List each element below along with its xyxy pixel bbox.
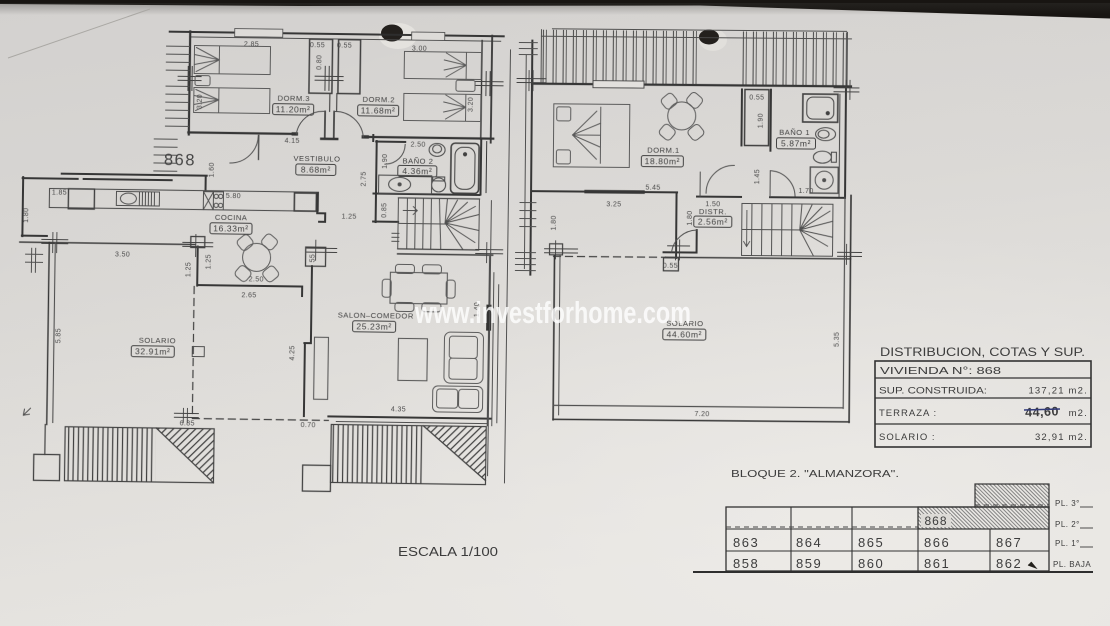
svg-text:www.investforhome.com: www.investforhome.com <box>414 295 691 330</box>
svg-text:DISTRIBUCION, COTAS Y SUP.: DISTRIBUCION, COTAS Y SUP. <box>880 347 1085 359</box>
svg-text:18.80m²: 18.80m² <box>645 156 680 166</box>
svg-text:859: 859 <box>796 556 822 571</box>
svg-text:25.23m²: 25.23m² <box>356 321 392 331</box>
svg-text:DISTR.: DISTR. <box>699 207 727 216</box>
svg-text:1.90: 1.90 <box>758 113 765 128</box>
svg-text:864: 864 <box>796 535 822 550</box>
svg-text:BAÑO 2: BAÑO 2 <box>402 156 433 165</box>
svg-text:1.80: 1.80 <box>551 215 558 230</box>
svg-text:1.80: 1.80 <box>23 208 30 223</box>
svg-text:1.25: 1.25 <box>205 254 212 269</box>
svg-text:0.55: 0.55 <box>337 42 352 49</box>
svg-text:11.68m²: 11.68m² <box>361 106 396 116</box>
svg-text:1.25: 1.25 <box>185 262 192 277</box>
svg-text:3.00: 3.00 <box>412 46 427 53</box>
svg-text:1.90: 1.90 <box>382 154 389 169</box>
svg-text:5.45: 5.45 <box>645 185 660 192</box>
svg-text:0.55: 0.55 <box>749 95 764 102</box>
svg-text:3.50: 3.50 <box>115 251 130 258</box>
svg-text:m2.: m2. <box>1069 408 1088 419</box>
svg-text:862: 862 <box>996 556 1022 571</box>
svg-text:0.85: 0.85 <box>381 203 388 218</box>
svg-text:867: 867 <box>996 535 1022 550</box>
svg-text:863: 863 <box>733 535 759 550</box>
svg-text:DORM.1: DORM.1 <box>647 146 680 155</box>
svg-text:5.87m²: 5.87m² <box>781 138 811 148</box>
svg-text:2.50: 2.50 <box>411 142 426 149</box>
svg-text:PL. 3°: PL. 3° <box>1055 499 1080 508</box>
svg-text:0.70: 0.70 <box>301 422 316 429</box>
svg-text:BLOQUE 2. "ALMANZORA".: BLOQUE 2. "ALMANZORA". <box>731 468 899 480</box>
svg-text:2.85: 2.85 <box>244 41 259 48</box>
svg-text:SOLARIO: SOLARIO <box>139 336 176 346</box>
svg-text:32.91m²: 32.91m² <box>135 346 171 356</box>
svg-text:0.80: 0.80 <box>316 55 323 70</box>
svg-text:PL. 1°: PL. 1° <box>1055 539 1080 548</box>
svg-text:860: 860 <box>858 556 884 571</box>
svg-text:PL. BAJA: PL. BAJA <box>1053 560 1091 569</box>
svg-text:1.80: 1.80 <box>687 210 694 225</box>
svg-text:ESCALA 1/100: ESCALA 1/100 <box>398 545 498 559</box>
svg-text:868: 868 <box>164 151 196 169</box>
svg-text:16.33m²: 16.33m² <box>213 223 249 233</box>
svg-text:4.35: 4.35 <box>391 406 406 413</box>
svg-text:2.65: 2.65 <box>241 292 256 299</box>
svg-text:44,60: 44,60 <box>1025 404 1059 419</box>
svg-text:32,91 m2.: 32,91 m2. <box>1035 432 1088 443</box>
svg-text:865: 865 <box>858 535 884 550</box>
svg-text:BAÑO 1: BAÑO 1 <box>779 128 810 137</box>
svg-text:SOLARIO :: SOLARIO : <box>879 432 936 443</box>
svg-text:868: 868 <box>924 514 947 528</box>
svg-text:0.55: 0.55 <box>663 263 678 270</box>
svg-text:2.75: 2.75 <box>361 171 368 186</box>
svg-text:5.80: 5.80 <box>226 193 241 200</box>
svg-text:1.60: 1.60 <box>209 162 216 177</box>
svg-text:SUP. CONSTRUIDA:: SUP. CONSTRUIDA: <box>879 386 987 397</box>
svg-text:PL. 2°: PL. 2° <box>1055 520 1080 529</box>
svg-text:3.25: 3.25 <box>606 201 621 208</box>
svg-text:3.20: 3.20 <box>468 97 475 112</box>
svg-text:11.20m²: 11.20m² <box>276 104 311 114</box>
svg-text:1.70: 1.70 <box>798 188 813 195</box>
svg-text:1.85: 1.85 <box>52 190 67 197</box>
svg-text:4.15: 4.15 <box>285 138 300 145</box>
svg-text:7.20: 7.20 <box>694 411 709 418</box>
svg-text:1.25: 1.25 <box>341 214 356 221</box>
svg-text:DORM.3: DORM.3 <box>277 94 310 103</box>
svg-text:SALON–COMEDOR: SALON–COMEDOR <box>338 311 414 321</box>
svg-text:VESTIBULO: VESTIBULO <box>293 154 340 164</box>
svg-text:8.68m²: 8.68m² <box>301 165 331 175</box>
svg-text:5.85: 5.85 <box>55 328 62 343</box>
svg-text:1.45: 1.45 <box>754 169 761 184</box>
svg-text:44.60m²: 44.60m² <box>667 330 702 340</box>
svg-text:0.55: 0.55 <box>310 42 325 49</box>
svg-text:5.35: 5.35 <box>834 332 841 347</box>
svg-text:858: 858 <box>733 556 759 571</box>
svg-text:861: 861 <box>924 556 950 571</box>
svg-text:COCINA: COCINA <box>215 213 248 222</box>
svg-text:4.25: 4.25 <box>289 345 296 360</box>
svg-text:866: 866 <box>924 535 950 550</box>
svg-text:137,21 m2.: 137,21 m2. <box>1028 386 1088 397</box>
svg-text:TERRAZA :: TERRAZA : <box>879 408 937 419</box>
svg-text:VIVIENDA N°: 868: VIVIENDA N°: 868 <box>880 365 1001 377</box>
svg-text:3.20: 3.20 <box>197 94 204 109</box>
svg-text:DORM.2: DORM.2 <box>362 95 395 104</box>
svg-text:2.56m²: 2.56m² <box>698 217 728 227</box>
svg-text:2.50: 2.50 <box>249 276 264 283</box>
